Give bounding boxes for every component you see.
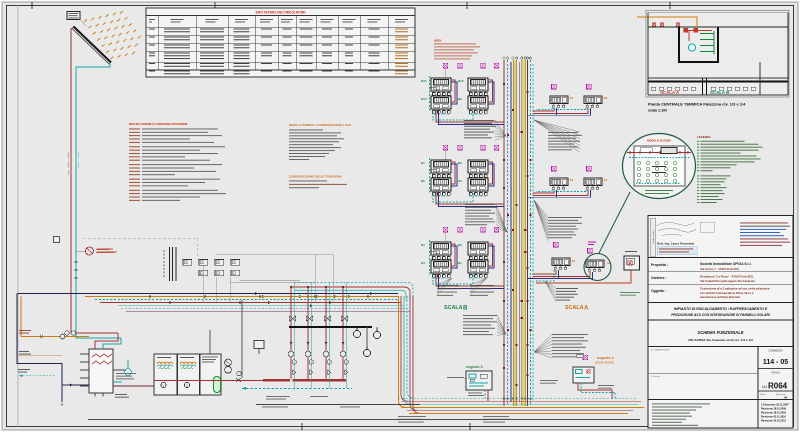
svg-text:negozio 4: negozio 4: [597, 356, 614, 360]
svg-text:1.Emissione 05.11.2007: 1.Emissione 05.11.2007: [761, 404, 789, 407]
svg-text:Pianta CENTRALE TERMICA Palazz: Pianta CENTRALE TERMICA Palazzina civ. 1…: [648, 102, 746, 107]
svg-text:MODULO TERMICO. A CONDENSAZION: MODULO TERMICO. A CONDENSAZIONE A GAS: [289, 123, 351, 127]
svg-text:Revisione 18.01.2010: Revisione 18.01.2010: [761, 412, 787, 415]
svg-text:COMMESSA: COMMESSA: [769, 350, 783, 353]
svg-text:B4: B4: [421, 261, 425, 265]
svg-text:B5: B5: [421, 179, 425, 183]
svg-text:MODULO DI ZONA: MODULO DI ZONA: [647, 139, 671, 143]
svg-text:Revisione 29.10.2009: Revisione 29.10.2009: [761, 408, 787, 411]
svg-text:B10: B10: [458, 79, 464, 83]
svg-text:(locali ceduti): (locali ceduti): [595, 361, 614, 365]
svg-text:COIBENTAZIONE DELLE TUBAZIONI: COIBENTAZIONE DELLE TUBAZIONI: [289, 175, 342, 179]
svg-text:Società Immobiliare SPIGA S.r.: Società Immobiliare SPIGA S.r.l.: [700, 262, 752, 266]
svg-text:scala 1:100: scala 1:100: [648, 109, 667, 113]
svg-text:Revisione 05.11.2010: Revisione 05.11.2010: [761, 416, 786, 419]
svg-text:B1: B1: [458, 261, 462, 265]
svg-text:B4: B4: [458, 179, 462, 183]
svg-text:A: A: [584, 305, 589, 312]
svg-text:04: 04: [784, 396, 788, 400]
svg-text:Cantiere :: Cantiere :: [651, 276, 667, 280]
svg-text:autorimesse al Piano Interrato: autorimesse al Piano Interrato: [700, 295, 740, 299]
svg-text:REGOLAZIONE E CONTABILIZZAZION: REGOLAZIONE E CONTABILIZZAZIONE: [129, 122, 188, 126]
svg-text:114 - 05: 114 - 05: [763, 359, 788, 366]
svg-text:B12: B12: [421, 97, 427, 101]
svg-text:B9: B9: [458, 97, 462, 101]
svg-text:Il Tecnico: Il Tecnico: [651, 376, 661, 378]
svg-text:B3: B3: [421, 243, 425, 247]
svg-text:Via Fratelli Rosselli angolo V: Via Fratelli Rosselli angolo Via Casarol…: [700, 279, 755, 283]
svg-text:114: 114: [762, 385, 767, 389]
svg-text:IL COMMITTENTE: IL COMMITTENTE: [651, 350, 670, 352]
svg-text:SCALA A: SCALA A: [660, 90, 680, 95]
svg-text:NOTA:: NOTA:: [434, 39, 442, 43]
svg-text:IMPIANTO DI RISCALDAMENTO / RA: IMPIANTO DI RISCALDAMENTO / RAFFRESCAMEN…: [674, 307, 768, 311]
svg-text:Scala: Scala: [760, 394, 766, 396]
svg-text:Oggetto :: Oggetto :: [651, 289, 666, 293]
svg-text:B2: B2: [458, 243, 462, 247]
svg-text:studio tecnico: studio tecnico: [652, 230, 655, 244]
svg-text:B6: B6: [458, 161, 462, 165]
svg-text:A3: A3: [570, 178, 574, 182]
svg-text:SCALA: SCALA: [444, 305, 463, 311]
svg-text:A1: A1: [572, 259, 576, 263]
svg-text:PALAZZINA Via Casarola, civici: PALAZZINA Via Casarola, civici nn. 1/3 e…: [688, 338, 753, 342]
svg-text:PRODUZIONE ACS CON INTEGRAZION: PRODUZIONE ACS CON INTEGRAZIONE DI PANNE…: [671, 313, 770, 317]
svg-text:B: B: [463, 305, 468, 312]
svg-text:B11: B11: [421, 79, 427, 83]
svg-text:Dott. Ing. Laura Fioravanti: Dott. Ing. Laura Fioravanti: [657, 242, 694, 246]
svg-text:DATI TECNICI DEI CIRCOLATORI: DATI TECNICI DEI CIRCOLATORI: [256, 10, 306, 14]
svg-text:LEGENDA: LEGENDA: [697, 135, 711, 139]
svg-text:Proprietà :: Proprietà :: [651, 263, 668, 267]
svg-text:A4: A4: [604, 178, 608, 182]
svg-text:TAVOLA: TAVOLA: [771, 372, 780, 375]
svg-text:A5: A5: [570, 96, 574, 100]
svg-text:Via Fermi, 7 - 47023 Forlì (FC: Via Fermi, 7 - 47023 Forlì (FC): [700, 267, 739, 271]
svg-text:SCALA: SCALA: [565, 305, 584, 311]
svg-text:SCALA B: SCALA B: [710, 90, 729, 95]
svg-text:negozio 3: negozio 3: [466, 365, 483, 369]
svg-text:Revisione 24.01.2011: Revisione 24.01.2011: [761, 420, 786, 423]
svg-text:B7: B7: [421, 161, 425, 165]
svg-text:A6: A6: [604, 96, 608, 100]
svg-text:R064: R064: [768, 382, 788, 391]
svg-text:SCHEMA FUNZIONALE: SCHEMA FUNZIONALE: [697, 330, 743, 335]
